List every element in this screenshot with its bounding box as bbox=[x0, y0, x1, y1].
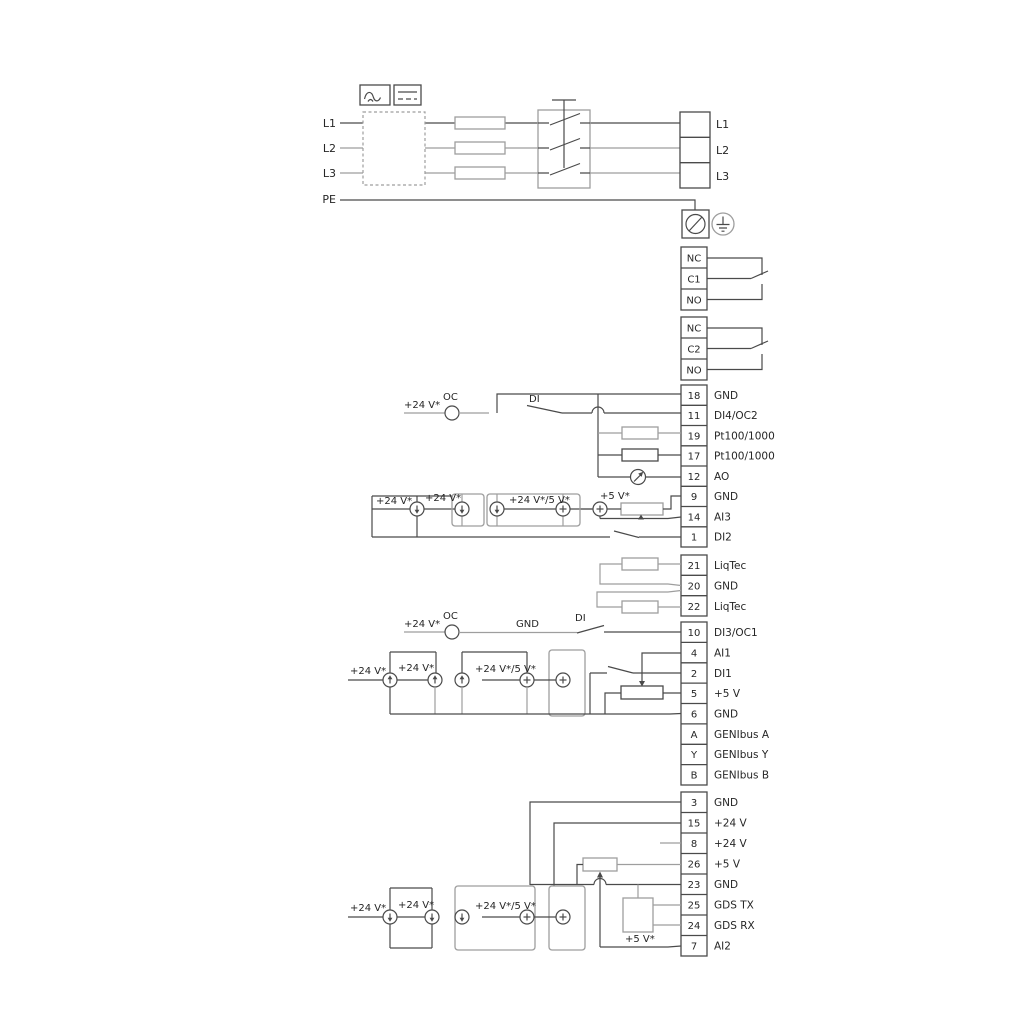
terminal-label: GENIbus B bbox=[714, 770, 769, 782]
rfi-filter-box bbox=[363, 112, 425, 185]
v5-label: +5 V* bbox=[600, 491, 630, 502]
io-terminal-strip-3: 3 15 8 26 23 25 24 7 GND +24 V +24 V +5 … bbox=[681, 792, 755, 956]
ac-symbol-box bbox=[360, 85, 390, 105]
terminal-num: B bbox=[691, 771, 698, 782]
terminal-num: 22 bbox=[688, 602, 701, 613]
terminal-label: GND bbox=[714, 709, 738, 721]
io-terminal-strip-2: 10 4 2 5 6 A Y B DI3/OC1 AI1 DI1 +5 V GN… bbox=[681, 622, 770, 785]
terminal-label: GDS RX bbox=[714, 920, 755, 932]
current-source-icon bbox=[556, 910, 570, 924]
wiring-diagram-page: L1 L2 L3 PE bbox=[0, 0, 1024, 1024]
current-source-icon bbox=[428, 673, 442, 687]
terminal-label: Pt100/1000 bbox=[714, 451, 775, 463]
terminal-label: +5 V bbox=[714, 688, 741, 700]
relay2-no-label: NO bbox=[686, 366, 701, 377]
pt100-resistor-1 bbox=[598, 427, 681, 439]
pt100-resistor-2 bbox=[598, 449, 681, 461]
relay2-c2-label: C2 bbox=[687, 345, 700, 356]
terminal-num: 23 bbox=[688, 880, 701, 891]
terminal-label: +5 V bbox=[714, 859, 741, 871]
mains-input-section: L1 L2 L3 PE bbox=[322, 85, 734, 238]
gds-sensor-module: +5 V* bbox=[623, 885, 681, 946]
current-source-icon bbox=[425, 910, 439, 924]
terminal-num: 18 bbox=[688, 391, 701, 402]
phase-label-pe: PE bbox=[322, 193, 336, 206]
v24-label: +24 V* bbox=[350, 903, 386, 914]
terminal-label: AI2 bbox=[714, 941, 731, 953]
terminal-num: 3 bbox=[691, 798, 697, 809]
v24v5-label: +24 V*/5 V* bbox=[475, 664, 536, 675]
io-terminal-strip-1: 18 11 19 17 12 9 14 1 GND DI4/OC2 Pt100/… bbox=[681, 385, 775, 547]
phase-label-l1-right: L1 bbox=[716, 118, 729, 131]
terminal-label: DI2 bbox=[714, 532, 732, 544]
open-collector-icon bbox=[445, 625, 459, 639]
terminal-label: GENIbus Y bbox=[714, 749, 769, 761]
strip3-wiring: +5 V* bbox=[530, 802, 681, 947]
current-source-icon bbox=[556, 673, 570, 687]
earth-symbol-icon bbox=[712, 213, 734, 235]
v24-label: +24 V* bbox=[376, 496, 412, 507]
di3-row: +24 V* OC GND DI bbox=[404, 611, 681, 639]
v24v5-label: +24 V*/5 V* bbox=[509, 495, 570, 506]
source-group-ai2: +24 V* +24 V* +24 V*/5 V* bbox=[348, 886, 585, 950]
gnd-label: GND bbox=[516, 619, 539, 630]
terminal-num: 1 bbox=[691, 533, 697, 544]
v24-label: +24 V* bbox=[404, 400, 440, 411]
terminal-label: DI3/OC1 bbox=[714, 627, 758, 639]
terminal-num: 17 bbox=[688, 452, 701, 463]
current-source-icon bbox=[520, 910, 534, 924]
liqtec-sensor-2 bbox=[622, 601, 658, 613]
terminal-num: 15 bbox=[688, 819, 701, 830]
v24v5-label: +24 V*/5 V* bbox=[475, 901, 536, 912]
terminal-label: LiqTec bbox=[714, 601, 747, 613]
liqtec-terminal-strip: 21 20 22 LiqTec GND LiqTec bbox=[681, 555, 747, 616]
fuse-l3 bbox=[455, 167, 505, 179]
terminal-num: 20 bbox=[688, 582, 701, 593]
terminal-num: 26 bbox=[688, 860, 701, 871]
v24-label: +24 V* bbox=[350, 666, 386, 677]
liqtec-sensor-1 bbox=[622, 558, 658, 570]
terminal-num: 4 bbox=[691, 649, 697, 660]
terminal-num: 11 bbox=[688, 411, 701, 422]
terminal-label: DI4/OC2 bbox=[714, 410, 758, 422]
terminal-num: A bbox=[691, 730, 698, 741]
terminal-num: 8 bbox=[691, 839, 697, 850]
phase-label-l3-left: L3 bbox=[323, 167, 336, 180]
terminal-label: GND bbox=[714, 390, 738, 402]
pe-wire bbox=[340, 200, 695, 210]
fuse-l2 bbox=[455, 142, 505, 154]
terminal-label: +24 V bbox=[714, 818, 747, 830]
di2-switch bbox=[614, 531, 639, 538]
potentiometer-ai1 bbox=[605, 686, 681, 714]
terminal-label: AO bbox=[714, 471, 729, 483]
phase-label-l1-left: L1 bbox=[323, 117, 336, 130]
phase-label-l3-right: L3 bbox=[716, 170, 729, 183]
v5-label: +5 V* bbox=[625, 934, 655, 945]
current-source-icon bbox=[455, 502, 469, 516]
phase-label-l2-left: L2 bbox=[323, 142, 336, 155]
terminal-label: GDS TX bbox=[714, 900, 754, 912]
dc-symbol-box bbox=[394, 85, 421, 105]
terminal-num: 6 bbox=[691, 710, 697, 721]
current-source-icon bbox=[455, 673, 469, 687]
terminal-num: Y bbox=[690, 750, 698, 761]
terminal-label: +24 V bbox=[714, 838, 747, 850]
terminal-num: 24 bbox=[688, 921, 701, 932]
terminal-label: Pt100/1000 bbox=[714, 431, 775, 443]
terminal-label: AI3 bbox=[714, 512, 731, 524]
terminal-num: 19 bbox=[688, 432, 701, 443]
relay2-nc-label: NC bbox=[687, 324, 701, 335]
v24-label: +24 V* bbox=[398, 663, 434, 674]
open-collector-icon bbox=[445, 406, 459, 420]
terminal-num: 5 bbox=[691, 689, 697, 700]
di-label: DI bbox=[575, 613, 586, 624]
relay1-no-label: NO bbox=[686, 296, 701, 307]
current-source-icon bbox=[490, 502, 504, 516]
terminal-num: 14 bbox=[688, 513, 701, 524]
terminal-num: 9 bbox=[691, 492, 697, 503]
current-source-icon bbox=[520, 673, 534, 687]
liqtec-sensors bbox=[597, 558, 681, 613]
terminal-label: AI1 bbox=[714, 648, 731, 660]
v24-label: +24 V* bbox=[398, 900, 434, 911]
relay1-nc-label: NC bbox=[687, 254, 701, 265]
terminal-num: 7 bbox=[691, 942, 697, 953]
source-group-ai1: +24 V* +24 V* +24 V*/5 V* bbox=[348, 650, 681, 716]
terminal-num: 10 bbox=[688, 628, 701, 639]
mains-terminal-block bbox=[680, 112, 710, 188]
fuse-l1 bbox=[455, 117, 505, 129]
oc-label: OC bbox=[443, 392, 458, 403]
di-label: DI bbox=[529, 394, 540, 405]
relay1-contacts bbox=[707, 258, 762, 300]
terminal-label: DI1 bbox=[714, 668, 732, 680]
relay1-c1-label: C1 bbox=[687, 275, 700, 286]
di1-switch bbox=[608, 667, 633, 674]
phase-label-l2-right: L2 bbox=[716, 144, 729, 157]
pe-terminal bbox=[682, 210, 709, 238]
di3-switch bbox=[577, 626, 604, 634]
terminal-label: GND bbox=[714, 491, 738, 503]
oc-label: OC bbox=[443, 611, 458, 622]
terminal-num: 25 bbox=[688, 901, 701, 912]
relay2-block: NC C2 NO bbox=[681, 317, 768, 380]
main-switch bbox=[538, 100, 590, 188]
terminal-num: 2 bbox=[691, 669, 697, 680]
terminal-label: LiqTec bbox=[714, 560, 747, 572]
terminal-label: GND bbox=[714, 797, 738, 809]
current-source-icon bbox=[593, 502, 607, 516]
terminal-num: 12 bbox=[688, 472, 701, 483]
v24-label: +24 V* bbox=[425, 493, 461, 504]
current-source-icon bbox=[455, 910, 469, 924]
v24-label: +24 V* bbox=[404, 619, 440, 630]
wiring-diagram: L1 L2 L3 PE bbox=[0, 0, 1024, 1024]
terminal-label: GND bbox=[714, 581, 738, 593]
relay1-block: NC C1 NO bbox=[681, 247, 768, 310]
terminal-label: GND bbox=[714, 879, 738, 891]
analog-output-meter-icon bbox=[598, 470, 681, 485]
relay2-contacts bbox=[707, 328, 762, 370]
terminal-label: GENIbus A bbox=[714, 729, 770, 741]
terminal-num: 21 bbox=[688, 561, 701, 572]
